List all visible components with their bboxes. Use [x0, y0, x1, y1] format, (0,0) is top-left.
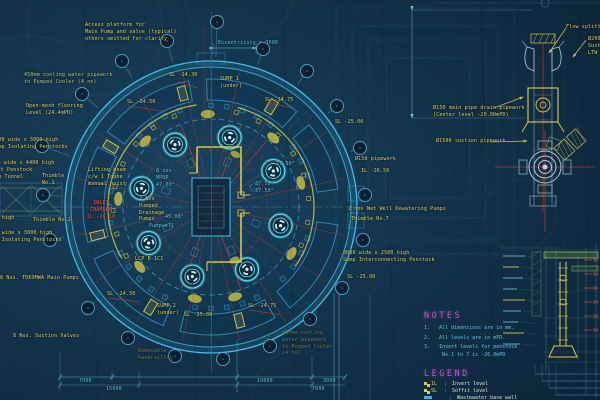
angle-2750-label: 27.50°	[255, 181, 274, 188]
drainage-pumps-label: 2 Nos Pumped Drainage Pumps	[139, 196, 164, 223]
suction-valves-label: 8 Nos. Suction Valves	[13, 333, 79, 340]
approach-tunnel-label: Approach Tunnel	[0, 174, 23, 181]
thimble-7-label: Thimble No.7	[351, 216, 389, 223]
wet-well-pumps-label: 2 nos Wet Well Dewatering Pumps	[348, 206, 446, 213]
legend-row: : Wastewater base wall	[424, 395, 520, 400]
dim-19000-label: 19000	[257, 378, 273, 385]
sl-2500-c-label: SL -25.00	[184, 312, 212, 319]
note-item: 1. All dimensions are in mm.	[424, 325, 517, 333]
sl-2500-b-label: SL -25.00	[347, 274, 375, 281]
dim-3000-label: 3000	[323, 378, 336, 385]
sl-2500-a-label: SL -25.00	[335, 119, 363, 126]
suction-pipework-label: Ø1500 suction pipework	[436, 138, 506, 145]
sl-2430-label: SL -24.30	[169, 72, 197, 79]
sump-interconnecting-label: 3000 wide x 2500 high Sump Interconnecti…	[343, 250, 435, 264]
legend-symbol-icon	[424, 382, 427, 385]
legend-row: IL : Invert level	[424, 381, 520, 388]
angle-7750-label: 77.50°	[276, 161, 295, 168]
note-item: 3. Invert levels for penstock No.1 to 7 …	[424, 344, 517, 359]
removable-handrailing-label: Removable handrailing	[138, 348, 173, 362]
inlet-chamber-label: INLET CHAMBER IL -26.50	[80, 200, 122, 220]
dim-7000-b-label: 7000	[312, 386, 325, 393]
legend-block: LEGEND IL : Invert level SL : Soffit lev…	[424, 369, 520, 400]
lcp-panel-label: LCP B-1C1	[135, 256, 163, 263]
legend-symbol-icon	[424, 389, 427, 392]
notes-heading: NOTES	[424, 311, 517, 321]
notes-block: NOTES 1. All dimensions are in mm. 2. Al…	[424, 311, 517, 361]
open-mesh-flooring-label: Open-mesh flooring Level (24.4mPD)	[26, 103, 83, 117]
il-2650-label: IL -26.50	[361, 168, 389, 175]
sl-2450-a-label: SL -24.50	[127, 99, 155, 106]
sl-2475-a-label: SL -24.75	[265, 97, 293, 104]
cooling-water-top-label: 450mm cooling water pipework to Pumped C…	[24, 72, 113, 86]
cooling-water-bottom-label: 450mm cooling water pipework to Pumped C…	[282, 330, 333, 357]
mpup-note-label: 8 nos MPUP 47.00°	[156, 168, 175, 188]
edge-notes-label: Ø200 Suction LTW	[588, 36, 600, 56]
eccentricity-label: Eccentricity = 3000	[218, 40, 278, 47]
sl-2450-b-label: SL -24.50	[107, 291, 135, 298]
main-pumps-label: 8 Nos. TDK9MWA Main Pumps	[0, 275, 79, 282]
dim-7000-a-label: 7000	[79, 378, 92, 385]
blueprint-canvas: NOTES 1. All dimensions are in mm. 2. Al…	[0, 0, 600, 400]
sl-2475-b-label: SL -24.75	[248, 303, 276, 310]
thimble-2-label: Thimble No.2	[33, 217, 71, 224]
legend-row: SL : Soffit level	[424, 388, 520, 395]
sump-1-label: SUMP 1 (under)	[220, 76, 242, 90]
drain-pipework-label: Ø150 main pipe drain pipework (Center le…	[433, 105, 525, 119]
thimble-1-label: Thimble No.1	[42, 173, 64, 187]
flow-splitter-label: Flow splitter	[566, 24, 600, 31]
dim-15000-label: 15000	[106, 386, 122, 393]
inlet-penstock-label: 7000 wide x 4400 high Inlet Penstock	[0, 160, 54, 174]
angle-4500-label: 45.00°	[165, 214, 184, 221]
pumpwell-label: Pumpwell	[149, 223, 174, 230]
approach-tunnel-structure	[0, 183, 62, 216]
sump-isolating-a-label: 3000 wide x 3000 high Sump Isolating Pen…	[0, 137, 68, 151]
high-2500-label: 2500 high	[0, 215, 14, 222]
legend-heading: LEGEND	[424, 369, 520, 379]
access-platform-label: Access platform for Main Pump and valve …	[85, 22, 177, 42]
lifting-beam-label: Lifting beam c/w 1 Tonne manual hoist	[88, 167, 126, 187]
note-item: 2. All levels are in mPD.	[424, 335, 517, 343]
angle-3750-label: 37.50°	[255, 188, 274, 195]
sump-isolating-b-label: 3000 wide x 3000 high Sump Isolating Pen…	[0, 230, 62, 244]
pipework-150-label: Ø150 pipework	[355, 156, 396, 163]
legend-swatch-cyan-icon	[424, 396, 432, 399]
sump-2-label: SUMP 2 (under)	[157, 303, 179, 317]
